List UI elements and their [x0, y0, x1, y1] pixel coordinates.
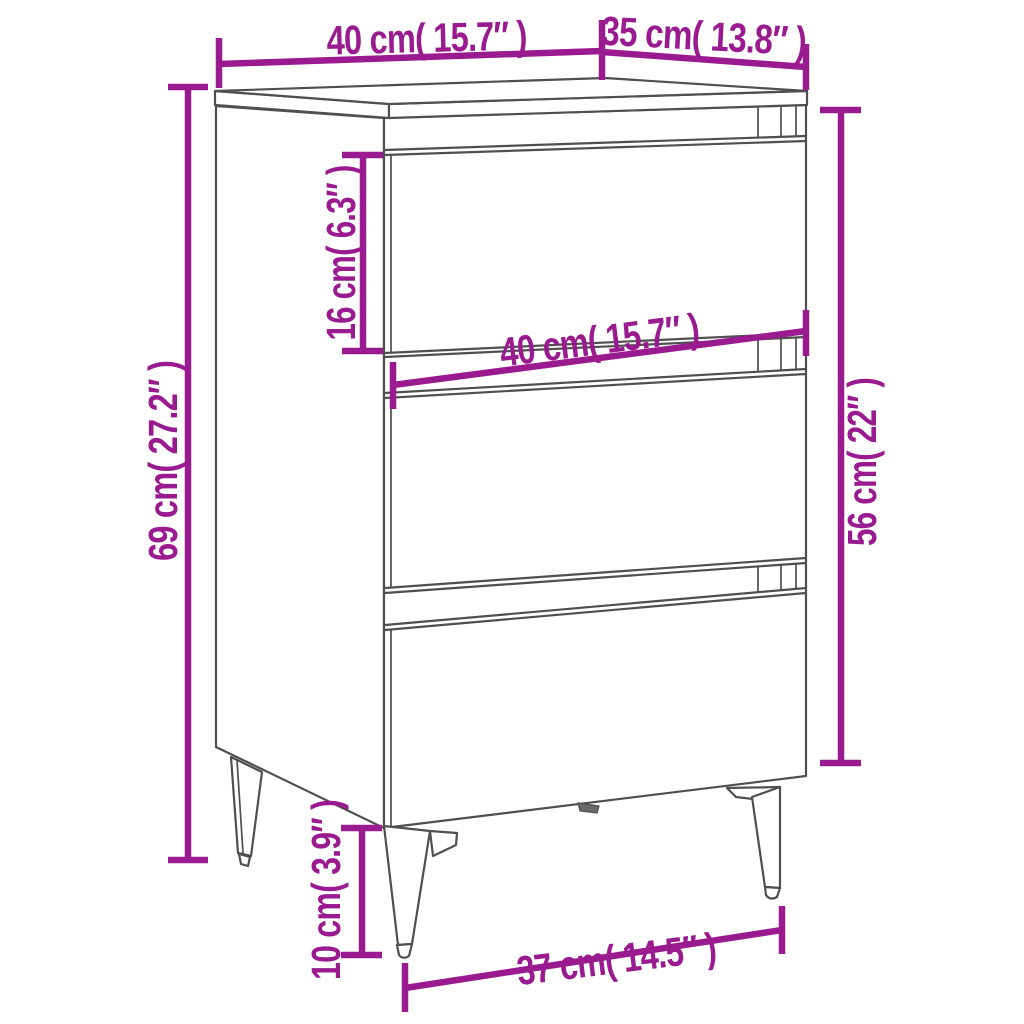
dimension-top-width: 40 cm( 15.7″ )	[219, 12, 602, 88]
furniture-dimension-diagram: 40 cm( 15.7″ ) 35 cm( 13.8″ ) 69 cm( 27.…	[0, 0, 1024, 1024]
dimension-base-width: 37 cm( 14.5″ )	[405, 906, 782, 1012]
dimension-label-drawer-height: 16 cm( 6.3″ )	[318, 166, 364, 341]
dimension-label-leg-height: 10 cm( 3.9″ )	[303, 800, 349, 980]
front-right-leg-foot	[765, 887, 780, 899]
dimension-label-overall-height: 69 cm( 27.2″ )	[140, 361, 186, 561]
dimension-label-top-width: 40 cm( 15.7″ )	[326, 12, 527, 63]
front-right-leg	[752, 787, 780, 888]
back-right-leg-tip	[578, 803, 599, 813]
back-left-leg-foot	[239, 854, 250, 866]
front-left-leg	[384, 826, 430, 945]
dimension-top-depth: 35 cm( 13.8″ )	[600, 8, 807, 90]
dimension-body-height: 56 cm( 22″ )	[820, 110, 885, 763]
front-left-leg-bracket	[430, 831, 457, 856]
dimension-overall-height: 69 cm( 27.2″ )	[140, 87, 208, 860]
dimension-label-body-height: 56 cm( 22″ )	[839, 378, 885, 546]
back-left-leg	[231, 757, 262, 856]
front-left-leg-foot	[397, 944, 412, 958]
dimension-leg-height: 10 cm( 3.9″ )	[303, 800, 382, 980]
front-panel	[384, 105, 806, 828]
dimension-label-base-width: 37 cm( 14.5″ )	[514, 924, 718, 994]
